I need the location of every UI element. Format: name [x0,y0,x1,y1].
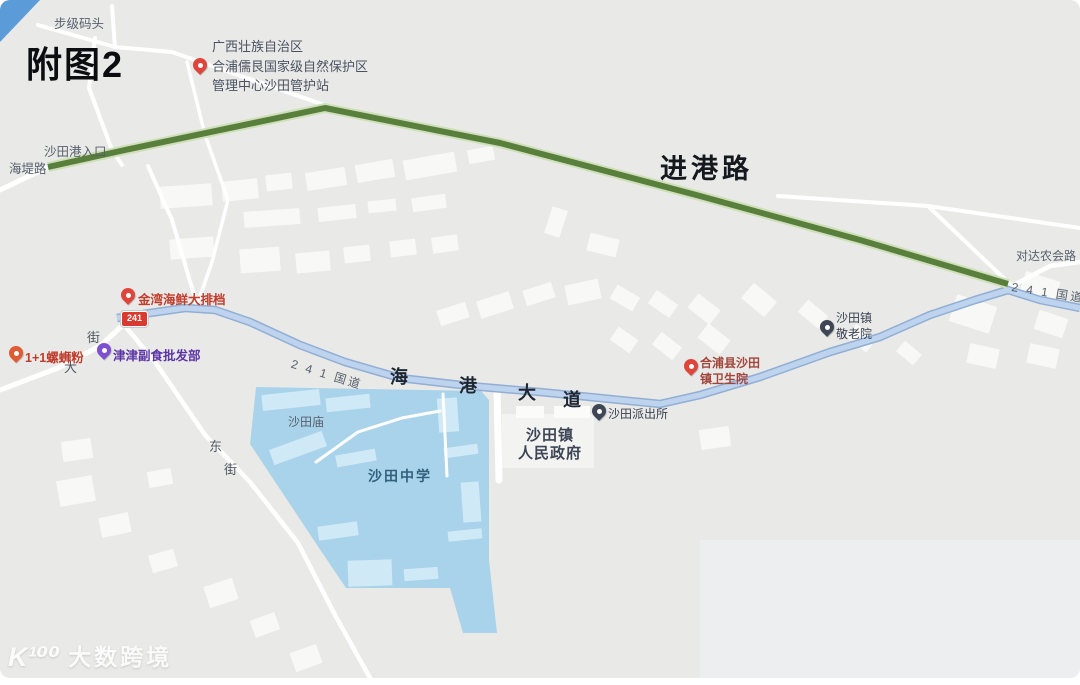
road-label-haigang-4: 道 [563,386,581,412]
hospital-line-2: 镇卫生院 [700,372,760,388]
hospital-pin-icon[interactable] [684,359,698,379]
nursing-home-pin-icon[interactable] [820,320,834,340]
map-base [0,0,1080,678]
poi-nursing-home-label[interactable]: 沙田镇 敬老院 [836,311,872,342]
watermark-brand: 大数跨境 [68,642,172,672]
poi-seafood-label[interactable]: 金湾海鲜大排档 [138,289,226,308]
reserve-pin-icon[interactable] [193,58,207,78]
terrain-wash [700,540,1080,678]
watermark-logo: K¹⁰⁰ [8,642,60,672]
reserve-line-3: 管理中心沙田管护站 [212,76,368,96]
watermark: K¹⁰⁰ 大数跨境 [8,642,172,672]
police-pin-icon[interactable] [592,404,606,424]
government-line-2: 人民政府 [510,445,590,463]
road-label-dongjie-1: 东 [209,436,222,455]
noodle-pin-icon[interactable] [9,346,23,366]
reserve-line-2: 合浦儒艮国家级自然保护区 [212,57,368,77]
reserve-line-1: 广西壮族自治区 [212,37,368,57]
poi-reserve-label[interactable]: 广西壮族自治区 合浦儒艮国家级自然保护区 管理中心沙田管护站 [212,37,368,96]
nursing-line-1: 沙田镇 [836,311,872,327]
figure-title: 附图2 [26,36,124,88]
poi-government-label[interactable]: 沙田镇 人民政府 [510,427,590,462]
nursing-line-2: 敬老院 [836,327,872,343]
poi-hospital-label[interactable]: 合浦县沙田 镇卫生院 [700,356,760,387]
government-line-1: 沙田镇 [510,427,590,445]
road-label-haidi: 海堤路 [9,158,47,177]
road-label-dock: 步级码头 [54,13,104,32]
g241-route-shield: 241 [121,311,148,327]
road-label-haigang-3: 大 [518,379,536,405]
road-label-duida: 对达农会路 [1016,247,1076,264]
poi-police-label[interactable]: 沙田派出所 [608,405,668,422]
grocery-pin-icon[interactable] [97,343,111,363]
poi-grocery-label[interactable]: 津津副食批发部 [113,345,201,364]
road-label-dongjie-2: 街 [224,459,237,478]
map-figure-page: 附图2 步级码头 广西壮族自治区 合浦儒艮国家级自然保护区 管理中心沙田管护站 … [0,0,1080,685]
road-label-jingang: 进港路 [660,147,753,186]
seafood-pin-icon[interactable] [121,288,135,308]
poi-temple-label[interactable]: 沙田庙 [288,413,324,430]
road-label-haigang-2: 港 [459,372,477,398]
hospital-line-1: 合浦县沙田 [700,356,760,372]
road-label-port-entrance: 沙田港入口 [44,141,107,160]
road-label-haigang-1: 海 [390,363,408,389]
poi-school-label[interactable]: 沙田中学 [368,466,432,486]
map-canvas[interactable]: 附图2 步级码头 广西壮族自治区 合浦儒艮国家级自然保护区 管理中心沙田管护站 … [0,0,1080,678]
poi-noodle-label[interactable]: 1+1螺蛳粉 [25,347,84,366]
